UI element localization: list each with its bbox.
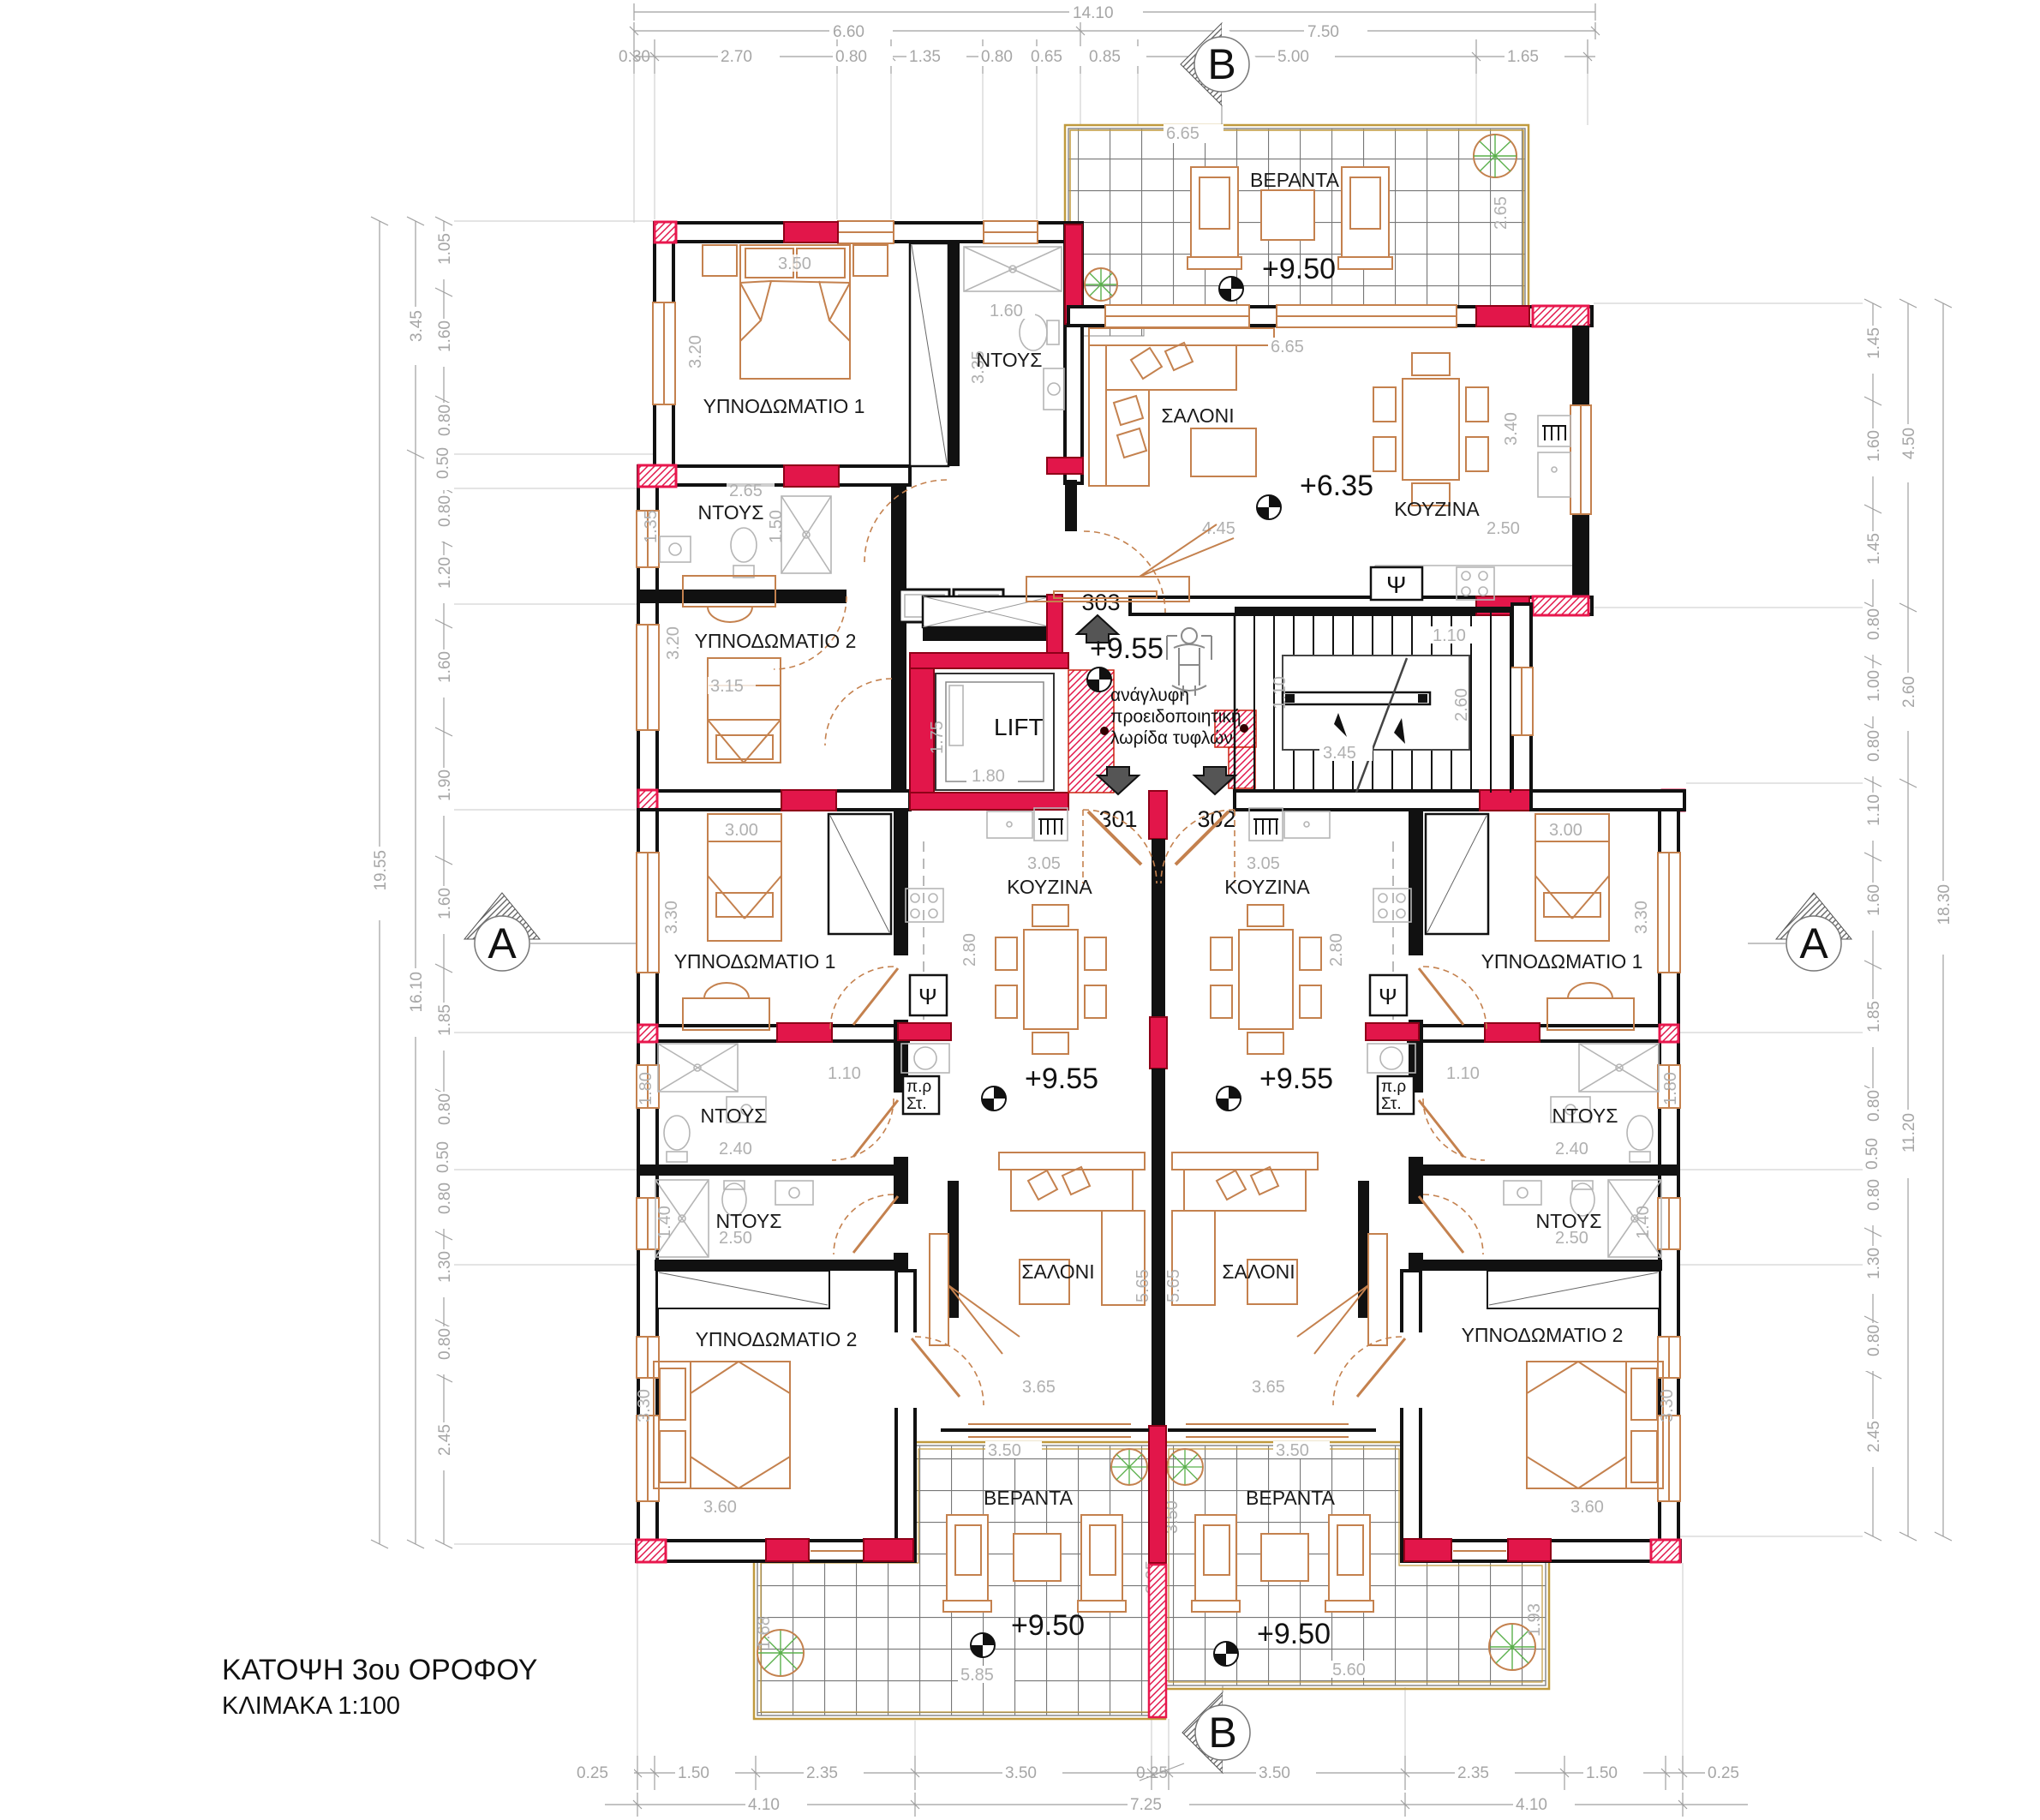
svg-text:2.60: 2.60 <box>1452 688 1471 721</box>
svg-text:3.50: 3.50 <box>1276 1441 1309 1460</box>
svg-text:λωρίδα τυφλών: λωρίδα τυφλών <box>1110 728 1233 748</box>
svg-text:1.10: 1.10 <box>828 1064 861 1083</box>
svg-text:0.50: 0.50 <box>1864 1138 1881 1170</box>
svg-text:1.60: 1.60 <box>1865 430 1883 462</box>
svg-text:3.15: 3.15 <box>710 677 744 696</box>
svg-text:+9.55: +9.55 <box>1025 1063 1098 1095</box>
svg-text:0.65: 0.65 <box>1031 48 1062 66</box>
svg-text:14.10: 14.10 <box>1073 4 1114 22</box>
svg-text:2.70: 2.70 <box>721 48 752 66</box>
svg-text:16.10: 16.10 <box>408 972 426 1013</box>
svg-text:ΝΤΟΥΣ: ΝΤΟΥΣ <box>1536 1210 1602 1232</box>
svg-text:1.45: 1.45 <box>1865 533 1883 565</box>
svg-text:3.50: 3.50 <box>1005 1764 1037 1782</box>
svg-text:A: A <box>488 919 517 967</box>
svg-text:7.25: 7.25 <box>1130 1796 1162 1814</box>
svg-text:3.30: 3.30 <box>635 1389 654 1422</box>
svg-text:1.10: 1.10 <box>1433 626 1466 645</box>
svg-text:ΝΤΟΥΣ: ΝΤΟΥΣ <box>977 349 1043 371</box>
svg-text:0.50: 0.50 <box>434 1141 452 1173</box>
svg-text:6.60: 6.60 <box>833 23 864 41</box>
svg-text:4.10: 4.10 <box>1516 1796 1547 1814</box>
svg-text:ΒΕΡΑΝΤΑ: ΒΕΡΑΝΤΑ <box>984 1487 1074 1509</box>
svg-text:1.80: 1.80 <box>637 1072 655 1105</box>
svg-text:1.00: 1.00 <box>1865 670 1883 702</box>
svg-text:3.65: 3.65 <box>1252 1378 1285 1397</box>
svg-text:ΚΛΙΜΑΚΑ 1:100: ΚΛΙΜΑΚΑ 1:100 <box>222 1692 400 1720</box>
svg-text:1.60: 1.60 <box>436 651 454 683</box>
svg-text:2.65: 2.65 <box>1492 196 1511 230</box>
svg-text:1.80: 1.80 <box>972 767 1005 786</box>
svg-text:3.45: 3.45 <box>408 310 426 342</box>
svg-text:3.00: 3.00 <box>725 821 758 840</box>
svg-text:ΥΠΝΟΔΩΜΑΤΙΟ 1: ΥΠΝΟΔΩΜΑΤΙΟ 1 <box>1481 950 1643 973</box>
svg-text:1.85: 1.85 <box>436 1004 454 1036</box>
svg-text:ΝΤΟΥΣ: ΝΤΟΥΣ <box>716 1210 782 1232</box>
svg-text:3.40: 3.40 <box>1502 412 1521 446</box>
svg-text:1.05: 1.05 <box>436 233 454 265</box>
svg-text:ΣΑΛΟΝΙ: ΣΑΛΟΝΙ <box>1021 1260 1094 1283</box>
svg-text:+9.55: +9.55 <box>1090 632 1164 665</box>
svg-text:5.60: 5.60 <box>1332 1661 1366 1679</box>
svg-text:0.80: 0.80 <box>1865 1179 1883 1211</box>
svg-text:3.30: 3.30 <box>662 901 681 934</box>
svg-text:B: B <box>1208 1709 1236 1757</box>
svg-text:4.50: 4.50 <box>1900 428 1918 459</box>
svg-text:0.80: 0.80 <box>1865 608 1883 640</box>
svg-text:1.35: 1.35 <box>909 48 941 66</box>
svg-text:2.60: 2.60 <box>1900 676 1918 708</box>
svg-text:3.05: 3.05 <box>1027 854 1061 873</box>
svg-text:ΚΑΤΟΨΗ 3ου ΟΡΟΦΟΥ: ΚΑΤΟΨΗ 3ου ΟΡΟΦΟΥ <box>222 1654 537 1686</box>
svg-text:4.10: 4.10 <box>748 1796 780 1814</box>
svg-text:11.20: 11.20 <box>1900 1113 1918 1152</box>
svg-text:0.80: 0.80 <box>1865 1090 1883 1122</box>
svg-text:2.35: 2.35 <box>1457 1764 1489 1782</box>
svg-text:0.80: 0.80 <box>835 48 867 66</box>
svg-text:1.90: 1.90 <box>436 769 454 801</box>
svg-text:+6.35: +6.35 <box>1300 470 1373 502</box>
svg-text:3.50: 3.50 <box>988 1441 1021 1460</box>
svg-text:1.20: 1.20 <box>436 557 454 589</box>
svg-text:0.80: 0.80 <box>436 1182 454 1214</box>
svg-text:2.40: 2.40 <box>719 1140 752 1158</box>
svg-text:2.45: 2.45 <box>436 1424 454 1456</box>
svg-text:0.25: 0.25 <box>577 1764 608 1782</box>
svg-text:1.85: 1.85 <box>1865 1001 1883 1033</box>
svg-text:ΝΤΟΥΣ: ΝΤΟΥΣ <box>1552 1105 1618 1127</box>
svg-text:1.60: 1.60 <box>436 320 454 352</box>
svg-text:0.25: 0.25 <box>1708 1764 1739 1782</box>
svg-text:1.30: 1.30 <box>1865 1248 1883 1279</box>
svg-text:1.35: 1.35 <box>642 510 661 543</box>
svg-text:2.80: 2.80 <box>1327 933 1346 967</box>
svg-text:2.45: 2.45 <box>1865 1421 1883 1452</box>
svg-text:0.80: 0.80 <box>436 495 454 527</box>
svg-text:1.65: 1.65 <box>1507 48 1539 66</box>
svg-text:3.50: 3.50 <box>1259 1764 1290 1782</box>
svg-text:3.50: 3.50 <box>778 254 811 273</box>
svg-text:2.65: 2.65 <box>729 482 763 500</box>
svg-text:2.80: 2.80 <box>960 933 979 967</box>
svg-text:1.50: 1.50 <box>678 1764 709 1782</box>
svg-text:1.30: 1.30 <box>436 1251 454 1283</box>
svg-text:π.ρ: π.ρ <box>1381 1078 1406 1096</box>
svg-text:π.ρ: π.ρ <box>906 1078 931 1096</box>
svg-text:+9.50: +9.50 <box>1262 253 1336 285</box>
svg-text:3.05: 3.05 <box>1247 854 1280 873</box>
svg-text:1.68: 1.68 <box>755 1616 774 1649</box>
svg-text:1.50: 1.50 <box>767 510 786 543</box>
svg-text:B: B <box>1207 40 1235 88</box>
svg-text:ΚΟΥΖΙΝΑ: ΚΟΥΖΙΝΑ <box>1224 876 1310 898</box>
svg-text:ΚΟΥΖΙΝΑ: ΚΟΥΖΙΝΑ <box>1394 498 1480 520</box>
svg-text:0.80: 0.80 <box>436 404 454 436</box>
svg-text:3.60: 3.60 <box>703 1498 737 1517</box>
svg-text:1.60: 1.60 <box>1865 884 1883 916</box>
svg-text:Ψ: Ψ <box>1386 572 1406 598</box>
svg-text:A: A <box>1799 919 1828 967</box>
svg-text:ΥΠΝΟΔΩΜΑΤΙΟ 1: ΥΠΝΟΔΩΜΑΤΙΟ 1 <box>674 950 836 973</box>
svg-text:0.85: 0.85 <box>1089 48 1121 66</box>
svg-text:2.35: 2.35 <box>806 1764 838 1782</box>
svg-text:ΥΠΝΟΔΩΜΑΤΙΟ 2: ΥΠΝΟΔΩΜΑΤΙΟ 2 <box>1462 1324 1624 1346</box>
svg-text:0.30: 0.30 <box>619 48 650 66</box>
svg-text:3.65: 3.65 <box>1022 1378 1056 1397</box>
svg-text:Στ.: Στ. <box>1381 1095 1402 1113</box>
svg-text:ΚΟΥΖΙΝΑ: ΚΟΥΖΙΝΑ <box>1007 876 1092 898</box>
svg-text:3.20: 3.20 <box>664 626 683 660</box>
svg-text:προειδοποιητική: προειδοποιητική <box>1110 707 1241 727</box>
svg-text:1.93: 1.93 <box>1525 1603 1544 1637</box>
svg-text:ΥΠΝΟΔΩΜΑΤΙΟ 2: ΥΠΝΟΔΩΜΑΤΙΟ 2 <box>695 630 857 652</box>
svg-text:1.10: 1.10 <box>1271 676 1289 709</box>
svg-text:ΣΑΛΟΝΙ: ΣΑΛΟΝΙ <box>1161 404 1234 427</box>
svg-text:2.40: 2.40 <box>1555 1140 1588 1158</box>
svg-text:ΝΤΟΥΣ: ΝΤΟΥΣ <box>701 1105 767 1127</box>
svg-text:18.30: 18.30 <box>1935 884 1953 925</box>
svg-text:1.50: 1.50 <box>1586 1764 1618 1782</box>
svg-text:0.80: 0.80 <box>1865 1325 1883 1356</box>
svg-text:7.50: 7.50 <box>1307 23 1339 41</box>
svg-text:5.65: 5.65 <box>1164 1269 1183 1302</box>
svg-text:ΝΤΟΥΣ: ΝΤΟΥΣ <box>698 501 764 524</box>
svg-text:5.85: 5.85 <box>960 1666 994 1685</box>
svg-text:LIFT: LIFT <box>994 714 1044 740</box>
svg-text:+9.50: +9.50 <box>1257 1618 1331 1650</box>
svg-text:1.40: 1.40 <box>655 1206 674 1239</box>
svg-text:5.65: 5.65 <box>1134 1269 1152 1302</box>
svg-text:+9.50: +9.50 <box>1011 1609 1085 1642</box>
svg-text:1.75: 1.75 <box>928 721 947 754</box>
svg-text:ΒΕΡΑΝΤΑ: ΒΕΡΑΝΤΑ <box>1246 1487 1336 1509</box>
svg-text:3.00: 3.00 <box>1549 821 1582 840</box>
svg-text:0.50: 0.50 <box>434 447 452 479</box>
svg-text:0.80: 0.80 <box>436 1093 454 1125</box>
svg-text:1.10: 1.10 <box>1865 794 1883 826</box>
svg-text:ΒΕΡΑΝΤΑ: ΒΕΡΑΝΤΑ <box>1250 169 1340 191</box>
svg-text:5.00: 5.00 <box>1277 48 1309 66</box>
svg-text:4.45: 4.45 <box>1202 519 1235 538</box>
svg-text:3.30: 3.30 <box>1658 1389 1677 1422</box>
svg-text:1.60: 1.60 <box>436 888 454 919</box>
svg-text:2.50: 2.50 <box>1487 519 1520 538</box>
svg-text:1.80: 1.80 <box>1661 1072 1680 1105</box>
svg-text:6.65: 6.65 <box>1271 338 1304 356</box>
svg-text:Ψ: Ψ <box>918 984 937 1009</box>
svg-text:3.60: 3.60 <box>1570 1498 1604 1517</box>
svg-text:3.30: 3.30 <box>1632 901 1651 934</box>
svg-text:1.45: 1.45 <box>1865 327 1883 359</box>
svg-text:ΥΠΝΟΔΩΜΑΤΙΟ 2: ΥΠΝΟΔΩΜΑΤΙΟ 2 <box>696 1328 858 1350</box>
svg-text:19.55: 19.55 <box>372 850 390 891</box>
svg-text:ΣΑΛΟΝΙ: ΣΑΛΟΝΙ <box>1222 1260 1295 1283</box>
svg-text:Ψ: Ψ <box>1379 984 1397 1009</box>
svg-text:1.40: 1.40 <box>1634 1206 1653 1239</box>
svg-text:+9.55: +9.55 <box>1259 1063 1333 1095</box>
svg-text:Στ.: Στ. <box>906 1095 927 1113</box>
svg-text:6.65: 6.65 <box>1166 124 1199 143</box>
svg-text:ΥΠΝΟΔΩΜΑΤΙΟ 1: ΥΠΝΟΔΩΜΑΤΙΟ 1 <box>703 395 865 417</box>
svg-text:0.80: 0.80 <box>981 48 1013 66</box>
svg-text:3.45: 3.45 <box>1323 744 1356 763</box>
svg-text:0.80: 0.80 <box>436 1328 454 1360</box>
svg-text:1.60: 1.60 <box>990 302 1023 320</box>
svg-text:0.80: 0.80 <box>1865 730 1883 762</box>
svg-text:3.20: 3.20 <box>686 335 705 368</box>
svg-text:1.10: 1.10 <box>1446 1064 1480 1083</box>
